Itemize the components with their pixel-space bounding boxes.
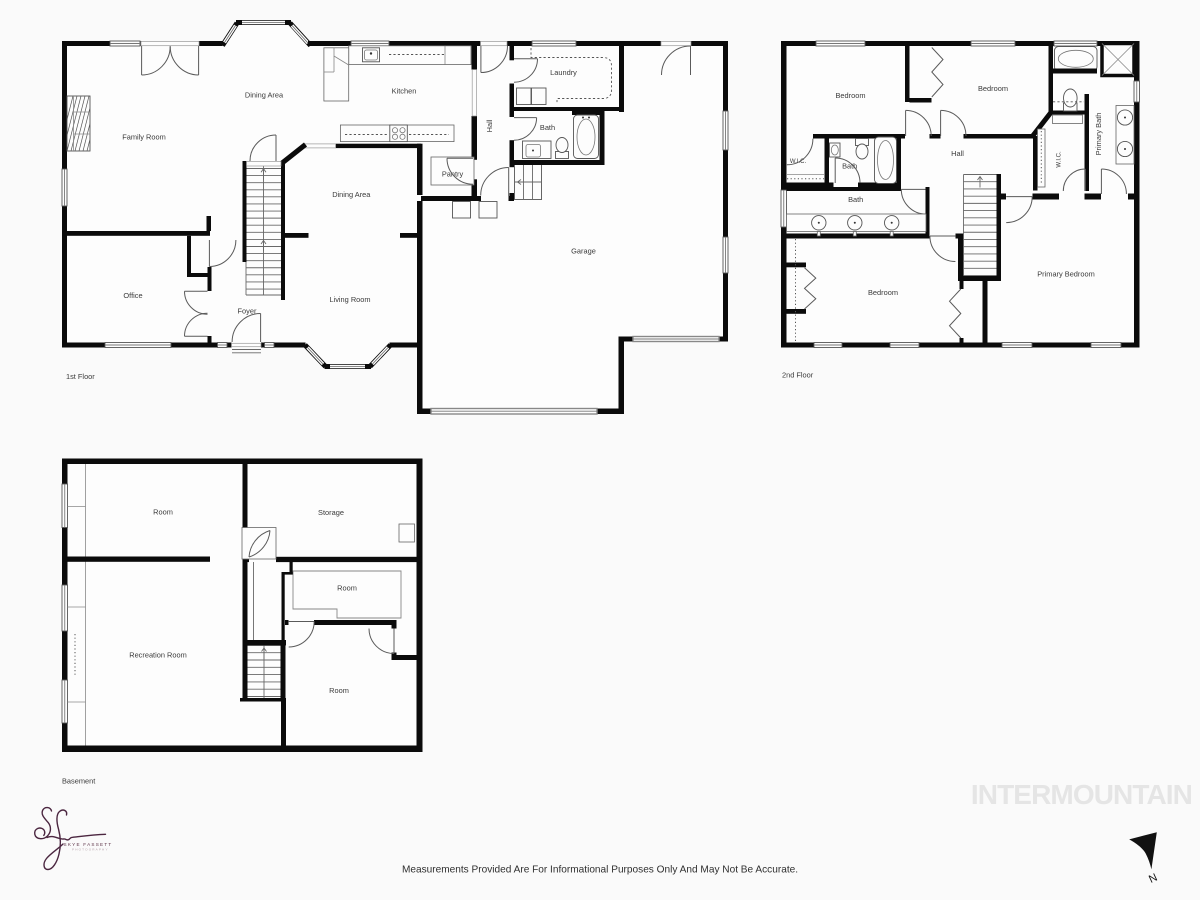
svg-text:Bedroom: Bedroom <box>978 84 1008 93</box>
svg-text:Hall: Hall <box>485 119 494 132</box>
svg-text:Bath: Bath <box>842 161 857 170</box>
svg-text:W.I.C.: W.I.C. <box>1057 151 1063 168</box>
svg-text:Dining Area: Dining Area <box>332 190 371 199</box>
svg-text:Office: Office <box>123 291 142 300</box>
svg-text:Bedroom: Bedroom <box>836 91 866 100</box>
svg-text:N: N <box>1147 872 1159 886</box>
svg-text:Room: Room <box>337 584 357 593</box>
svg-text:Measurements Provided Are For: Measurements Provided Are For Informatio… <box>402 865 798 876</box>
svg-text:1st Floor: 1st Floor <box>66 372 95 381</box>
svg-text:Room: Room <box>329 686 349 695</box>
svg-text:Primary Bath: Primary Bath <box>1094 113 1103 156</box>
svg-text:Room: Room <box>153 508 173 517</box>
svg-text:Hall: Hall <box>951 149 964 158</box>
svg-text:Kitchen: Kitchen <box>392 87 417 96</box>
svg-text:Recreation Room: Recreation Room <box>129 651 187 660</box>
svg-text:Foyer: Foyer <box>238 306 257 315</box>
svg-text:Pantry: Pantry <box>442 170 464 179</box>
svg-text:INTERMOUNTAIN: INTERMOUNTAIN <box>971 779 1192 810</box>
svg-text:SKYE FASSETT: SKYE FASSETT <box>64 842 113 847</box>
svg-text:Garage: Garage <box>571 246 596 255</box>
svg-text:Dining Area: Dining Area <box>245 91 284 100</box>
svg-text:Bath: Bath <box>540 123 555 132</box>
svg-text:Family Room: Family Room <box>122 133 166 142</box>
svg-text:PHOTOGRAPHY: PHOTOGRAPHY <box>72 847 109 851</box>
svg-text:Bath: Bath <box>848 195 863 204</box>
svg-text:Bedroom: Bedroom <box>868 288 898 297</box>
svg-text:Laundry: Laundry <box>550 68 577 77</box>
svg-text:Living Room: Living Room <box>329 295 370 304</box>
svg-text:W.I.C.: W.I.C. <box>790 159 807 165</box>
svg-text:Primary Bedroom: Primary Bedroom <box>1037 270 1095 279</box>
svg-text:2nd Floor: 2nd Floor <box>782 371 814 380</box>
svg-text:Storage: Storage <box>318 508 344 517</box>
svg-text:Basement: Basement <box>62 777 95 786</box>
